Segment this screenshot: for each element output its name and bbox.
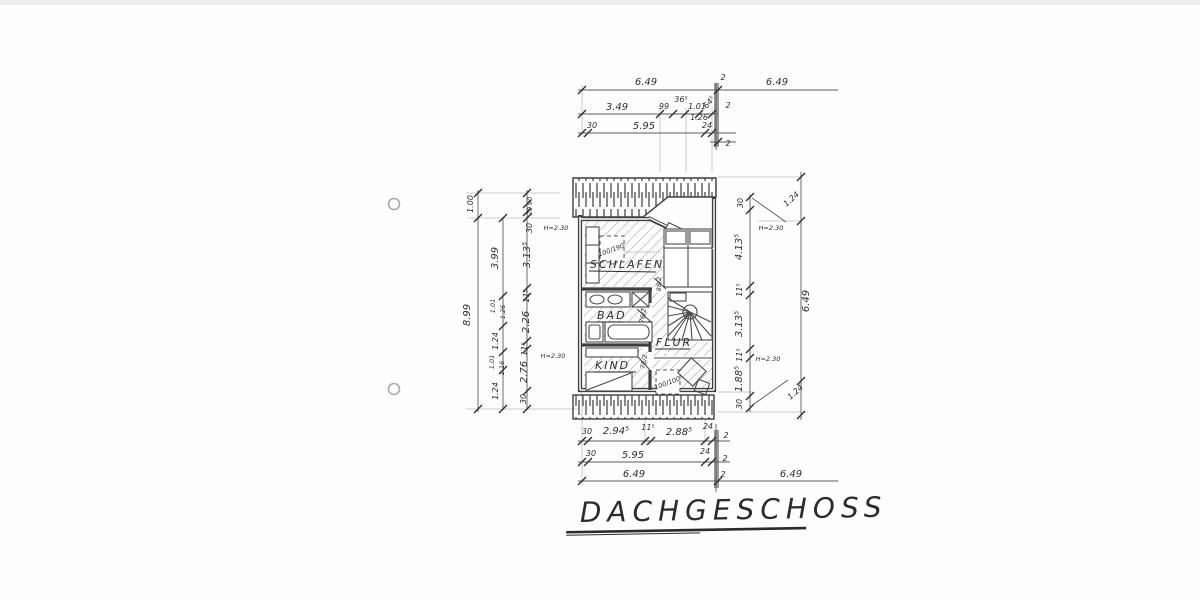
dim-top-349: 3.49 [606,102,628,113]
dim-right-124bottom: 1.24 [786,383,805,402]
dim-bot-595: 5.95 [622,450,644,461]
dim-top-wall3: 2 [725,139,730,148]
dim-right-115b: 11⁵ [735,348,744,361]
dim-left-90: 90 [526,197,534,205]
dim-right-30a: 30 [736,198,745,208]
dim-right-124top: 1.24 [782,190,801,209]
dim-right-115a: 11⁵ [735,283,744,296]
dim-top-99: 99 [659,102,669,111]
right-dimension-block: 30 4.13⁵ 11⁵ 3.13⁵ 11⁵ 1.88⁵ 30 1.24 6.4… [718,172,812,420]
dim-top-wall2: 2 [725,101,730,110]
height-note-left-top: H=2.30 [544,224,569,232]
dim-bot-wall2: 2 [722,454,727,463]
height-note-right-top: H=2.30 [759,224,784,232]
dim-bot-30b: 30 [586,449,596,458]
dim-left-115b: 11⁵ [520,342,529,355]
height-note-right-bottom: H=2.30 [756,355,781,363]
dim-left-399: 3.99 [490,247,501,269]
dim-left-116: 1.16 [498,361,506,375]
dim-bot-30a: 30 [582,427,592,436]
scanned-floor-plan-page: 6.49 2 6.49 3.49 99 36⁵ 1.01 1.26 64⁵ 2 … [0,0,1200,600]
door-size-schlafen: 88/2 [655,277,663,292]
dim-top-span-right: 6.49 [766,77,788,88]
shelf [586,348,638,357]
punch-hole-top [389,199,400,210]
dim-top-365: 36⁵ [674,95,687,104]
dim-left-101a: 1.01 [489,299,497,313]
dim-left-124a: 1.24 [491,332,500,350]
dim-right-649: 6.49 [801,290,812,312]
title-underline-2 [566,533,700,535]
wardrobe [586,227,599,283]
dim-bot-24b: 24 [700,447,710,456]
punch-hole-bottom [389,384,400,395]
dim-left-100: 1.00 [466,195,475,213]
dim-top-30: 30 [587,121,597,130]
floor-plan-svg: 6.49 2 6.49 3.49 99 36⁵ 1.01 1.26 64⁵ 2 … [0,0,1200,600]
dim-left-115a: 11⁵ [522,289,531,302]
dim-left-899: 8.99 [462,304,473,326]
dim-bot-2885: 2.88⁵ [666,427,692,438]
room-label-flur: FLUR [656,336,692,349]
dim-bot-24a: 24 [703,422,713,431]
scan-edge-artifact [0,0,1200,5]
dim-left-3135: 3.13⁵ [522,242,533,268]
plan-body: 88/2 76/2 76/2 100/190 [573,178,716,419]
dim-bot-wall3: 2 [720,470,725,479]
dim-bot-span-left: 6.49 [623,469,645,480]
dim-left-226: 2.26 [521,311,532,333]
dim-bot-115: 11⁵ [641,423,654,432]
page-title: DACHGESCHOSS [580,491,888,529]
dim-right-3135: 3.13⁵ [734,311,745,337]
dim-right-1885: 1.88⁵ [734,366,745,392]
height-note-left-bottom: H=2.30 [541,352,566,360]
roof-band-bottom [573,395,714,419]
room-label-kind: KIND [595,359,630,372]
room-label-schlafen: SCHLAFEN [590,258,664,271]
dim-right-30b: 30 [735,399,744,409]
roof-band-top [573,178,716,217]
dim-left-30: 30 [525,223,534,233]
dim-bot-span-right: 6.49 [780,469,802,480]
dim-left-124b: 1.24 [491,382,500,400]
dim-right-4135: 4.13⁵ [734,234,745,260]
dim-bot-2945: 2.94⁵ [603,426,629,437]
title-underline [566,528,806,532]
dim-left-101b: 1.01 [488,355,496,369]
left-dimension-block: 1.00 8.99 3.99 1.01 1.26 1.24 1.01 1.16 … [462,189,578,413]
dim-left-20: 20 [526,207,534,215]
spiral-staircase [668,292,712,340]
room-label-bad: BAD [597,309,627,322]
title-block: DACHGESCHOSS [566,491,888,536]
dim-top-wall: 2 [720,73,725,82]
dim-top-595: 5.95 [633,121,655,132]
dim-top-24: 24 [702,121,712,130]
top-dimension-block: 6.49 2 6.49 3.49 99 36⁵ 1.01 1.26 64⁵ 2 … [578,73,838,172]
dim-left-126: 1.26 [499,305,507,319]
dim-top-span-left: 6.49 [635,77,657,88]
dim-left-276: 2.76 [519,361,530,383]
dim-left-30b: 30 [519,394,528,404]
dim-bot-wall1: 2 [723,431,728,440]
